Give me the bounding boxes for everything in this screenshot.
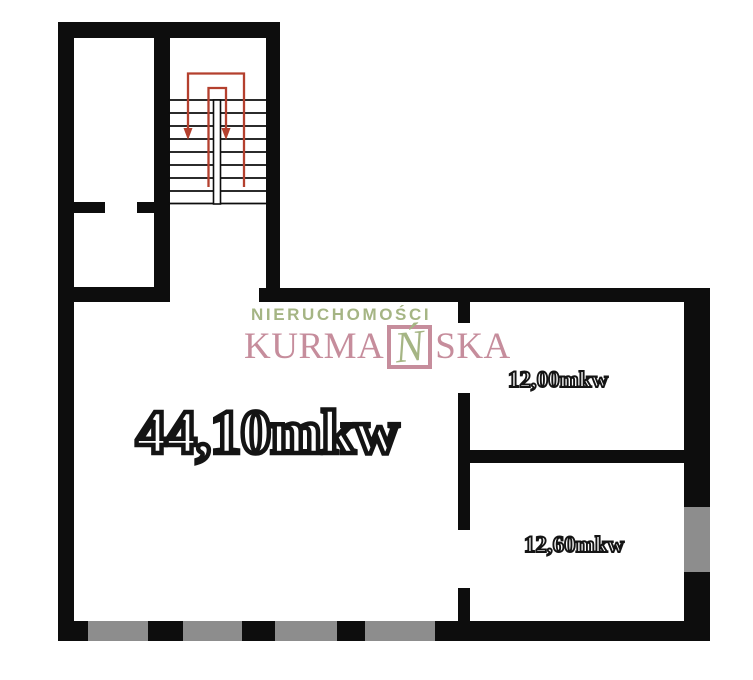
staircase [160,60,280,212]
agency-watermark-brand: KURMA Ń SKA [244,322,511,372]
wall-bottom-seg2 [148,621,183,641]
floor-plan: 44,10mkw 12,00mkw 12,60mkw NIERUCHOMOŚCI… [0,0,753,680]
brand-letter-box: Ń [387,325,432,369]
wall-bottom-seg3 [242,621,275,641]
wall-center-divider-seg1 [458,302,470,323]
wall-center-divider-seg2 [458,393,470,530]
room-label-main: 44,10mkw [117,398,417,469]
window-bottom-2 [183,621,242,641]
window-bottom-3 [275,621,337,641]
wall-left-room-divider-b [137,202,154,213]
brand-suffix: SKA [435,322,511,372]
wall-left-room-divider-a [74,202,105,213]
window-bottom-4 [365,621,435,641]
wall-bottom-seg1 [58,621,88,641]
brand-boxed-letter: Ń [387,319,433,375]
brand-prefix: KURMA [244,322,384,372]
room-label-bottom-right: 12,60mkw [504,532,644,558]
wall-right-block-top [259,288,710,302]
wall-right-rooms-divider [470,450,684,463]
wall-bottom-seg4 [337,621,365,641]
window-bottom-1 [88,621,148,641]
wall-left-block-bottom [74,287,170,302]
stair-center-stringer [214,100,221,204]
wall-center-divider-seg3 [458,588,470,621]
wall-bottom-seg5 [435,621,710,641]
wall-left-outer [58,22,74,641]
wall-right-outer-upper [684,302,710,507]
window-right-wall [684,507,710,572]
wall-top [58,22,280,38]
